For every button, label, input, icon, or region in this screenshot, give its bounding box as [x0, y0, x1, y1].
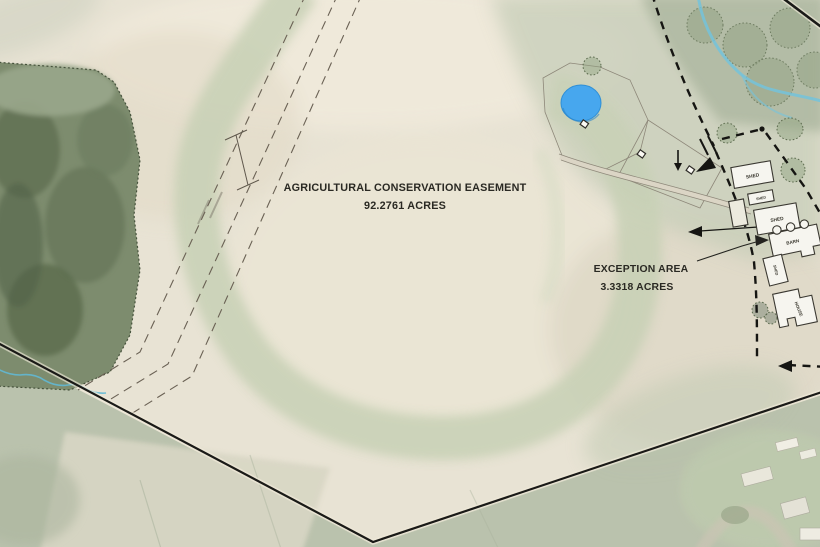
easement-title: AGRICULTURAL CONSERVATION EASEMENT [284, 182, 527, 194]
easement-map: SHED SHED SHED BARN SHED HOUSE AGRICUL [0, 0, 820, 547]
exception-title: EXCEPTION AREA [594, 264, 689, 275]
map-canvas: SHED SHED SHED BARN SHED HOUSE AGRICUL [0, 0, 820, 547]
woodland [0, 62, 140, 390]
easement-acreage: 92.2761 ACRES [364, 200, 446, 212]
exception-acreage: 3.3318 ACRES [600, 282, 673, 293]
pond [561, 85, 601, 122]
aerial-imagery [0, 0, 820, 547]
